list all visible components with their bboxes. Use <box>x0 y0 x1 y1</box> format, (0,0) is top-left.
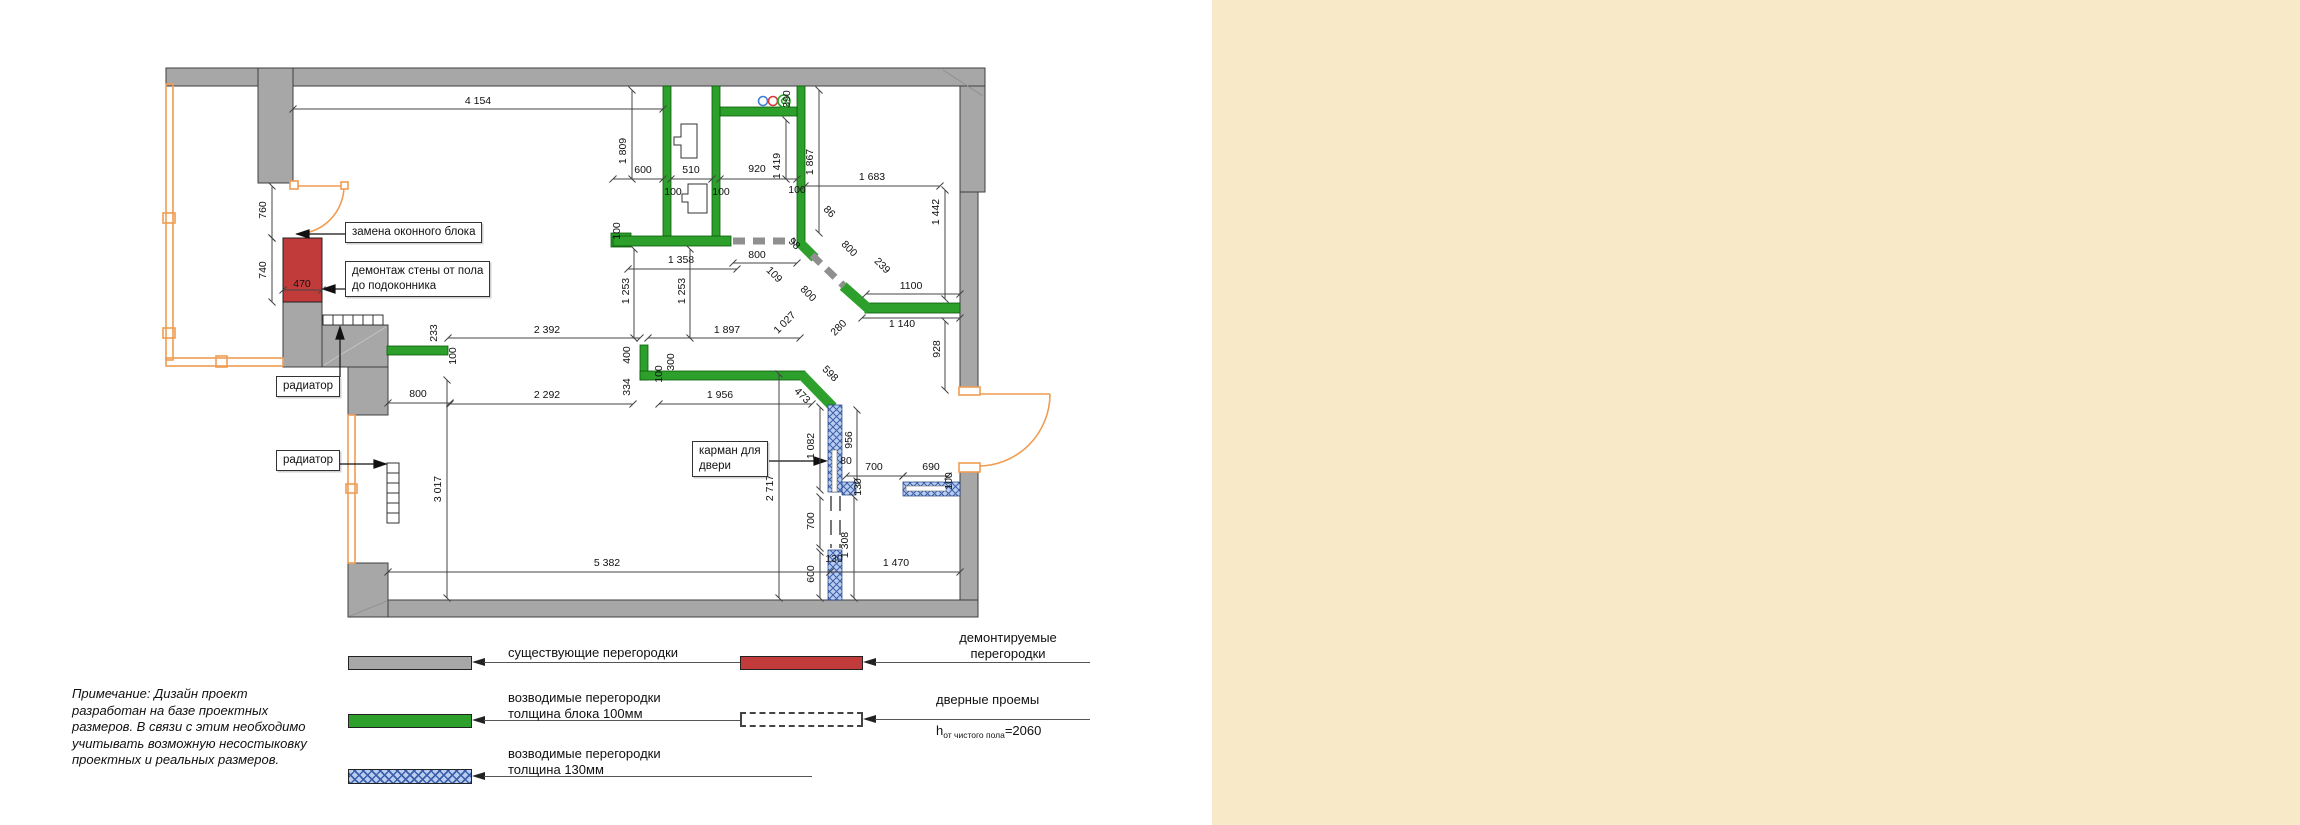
riser-cold-water-icon <box>759 97 768 106</box>
dimension-label: 1 897 <box>714 324 740 336</box>
dimension-label: 4 154 <box>465 95 491 107</box>
legend-label-new-100mm: возводимые перегородки толщина блока 100… <box>508 690 661 722</box>
legend-label-door-height: hот чистого пола=2060 <box>936 707 1041 740</box>
legend-swatch-demolished <box>740 656 863 670</box>
dimension-label: 598 <box>820 363 841 384</box>
legend-line <box>875 662 1090 663</box>
callout-door-pocket: карман для двери <box>692 441 768 477</box>
dimension-label: 100 <box>712 186 730 198</box>
dimension-label: 600 <box>805 565 817 583</box>
callout-radiator-top: радиатор <box>276 376 340 397</box>
dimension-label: 1 140 <box>889 318 915 330</box>
dimension-label: 800 <box>748 249 766 261</box>
dimension-label: 956 <box>843 431 855 449</box>
dimension-label: 100 <box>611 222 623 240</box>
legend-label-door-openings: дверные проемы <box>936 692 1039 708</box>
dimension-label: 800 <box>839 238 860 259</box>
dimension-label: 5 382 <box>594 557 620 569</box>
legend-label-new-130mm: возводимые перегородки толщина 130мм <box>508 746 661 778</box>
dimension-label: 1 683 <box>859 171 885 183</box>
door-height-value: =2060 <box>1005 723 1042 738</box>
legend-swatch-new-130mm <box>348 769 472 784</box>
dimension-label: 1100 <box>900 280 923 292</box>
dimension-label: 1 809 <box>617 138 629 164</box>
dimension-label: 3 017 <box>432 476 444 502</box>
balcony-door-arc <box>296 186 344 234</box>
legend-label-demolished: демонтируемые перегородки <box>908 630 1108 662</box>
dimension-label: 280 <box>828 317 849 338</box>
door-height-subscript: от чистого пола <box>943 730 1005 740</box>
dimension-label: 2 292 <box>534 389 560 401</box>
dimension-label: 100 <box>943 472 955 490</box>
legend-swatch-existing <box>348 656 472 670</box>
dimension-label: 2 392 <box>534 324 560 336</box>
dimension-label: 1 442 <box>930 199 942 225</box>
floor-plan-sheet: 4 1541 8096005101001009201 4191003901 86… <box>0 0 2300 825</box>
dimension-label: 400 <box>621 346 633 364</box>
dimension-label: 1 867 <box>804 149 816 175</box>
demolished-wall <box>283 238 322 302</box>
project-note: Примечание: Дизайн проект разработан на … <box>72 686 340 769</box>
dimension-label: 1 419 <box>771 153 783 179</box>
dimension-label: 130 <box>852 478 864 496</box>
dimension-label: 600 <box>634 164 652 176</box>
dimension-label: 100 <box>788 184 806 196</box>
riser-hot-water-icon <box>769 97 778 106</box>
dimension-label: 1 470 <box>883 557 909 569</box>
side-panel <box>1212 0 2300 825</box>
dimension-label: 700 <box>865 461 883 473</box>
dimension-label: 100 <box>653 365 665 383</box>
dimension-label: 1 308 <box>839 532 851 558</box>
dimension-label: 1 253 <box>676 278 688 304</box>
dimension-label: 510 <box>682 164 700 176</box>
dimension-label: 1 082 <box>805 433 817 459</box>
legend-swatch-door-openings <box>740 712 863 727</box>
dimension-label: 760 <box>257 201 269 219</box>
dimension-label: 100 <box>447 347 459 365</box>
dimension-label: 690 <box>922 461 940 473</box>
callout-window-block: замена оконного блока <box>345 222 482 243</box>
dimension-label: 1 956 <box>707 389 733 401</box>
dimension-label: 100 <box>664 186 682 198</box>
dimension-label: 390 <box>781 90 793 108</box>
dimension-label: 233 <box>428 324 440 342</box>
dimension-label: 470 <box>293 278 311 290</box>
dimension-label: 109 <box>764 264 785 285</box>
callout-demolition: демонтаж стены от пола до подоконника <box>345 261 490 297</box>
callout-radiator-left: радиатор <box>276 450 340 471</box>
dimension-label: 800 <box>798 283 819 304</box>
dimension-label: 1 027 <box>771 309 798 336</box>
legend-swatch-new-100mm <box>348 714 472 728</box>
dimension-label: 1 253 <box>620 278 632 304</box>
dimension-label: 740 <box>257 261 269 279</box>
dimension-label: 86 <box>821 204 838 221</box>
entrance-door-arc <box>978 394 1050 466</box>
dimension-label: 300 <box>665 353 677 371</box>
dimension-label: 700 <box>805 512 817 530</box>
dimension-label: 920 <box>748 163 766 175</box>
dimension-label: 2 717 <box>764 475 776 501</box>
dimension-label: 928 <box>931 340 943 358</box>
dimension-label: 800 <box>409 388 427 400</box>
dimension-label: 239 <box>872 255 893 276</box>
dimension-label: 80 <box>840 455 852 467</box>
legend-label-existing: существующие перегородки <box>508 645 678 661</box>
existing-walls <box>166 68 985 617</box>
dimension-label: 334 <box>621 378 633 396</box>
